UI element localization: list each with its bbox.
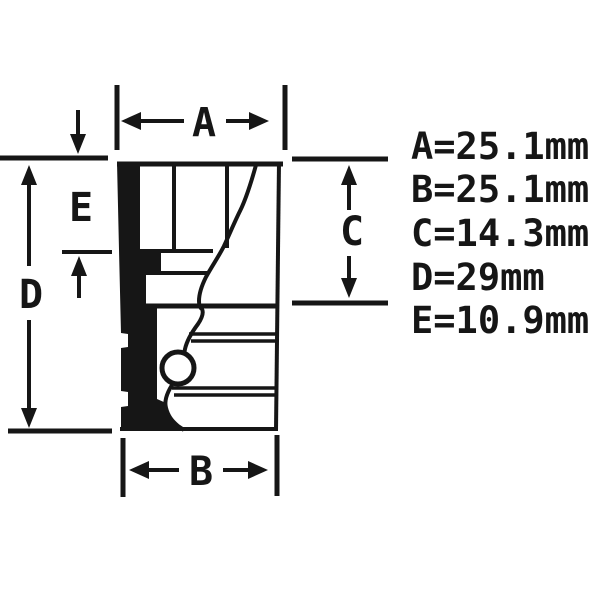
spec-line-b: B=25.1mm [411,171,589,208]
spec-line-d: D=29mm [411,259,545,296]
spec-line-a: A=25.1mm [411,128,589,165]
spec-line-e: E=10.9mm [411,302,589,339]
dimension-spec-list: A=25.1mm B=25.1mm C=14.3mm D=29mm E=10.9… [0,0,600,600]
spec-line-c: C=14.3mm [411,215,589,252]
socket-dimension-diagram: A B C D [0,0,600,600]
